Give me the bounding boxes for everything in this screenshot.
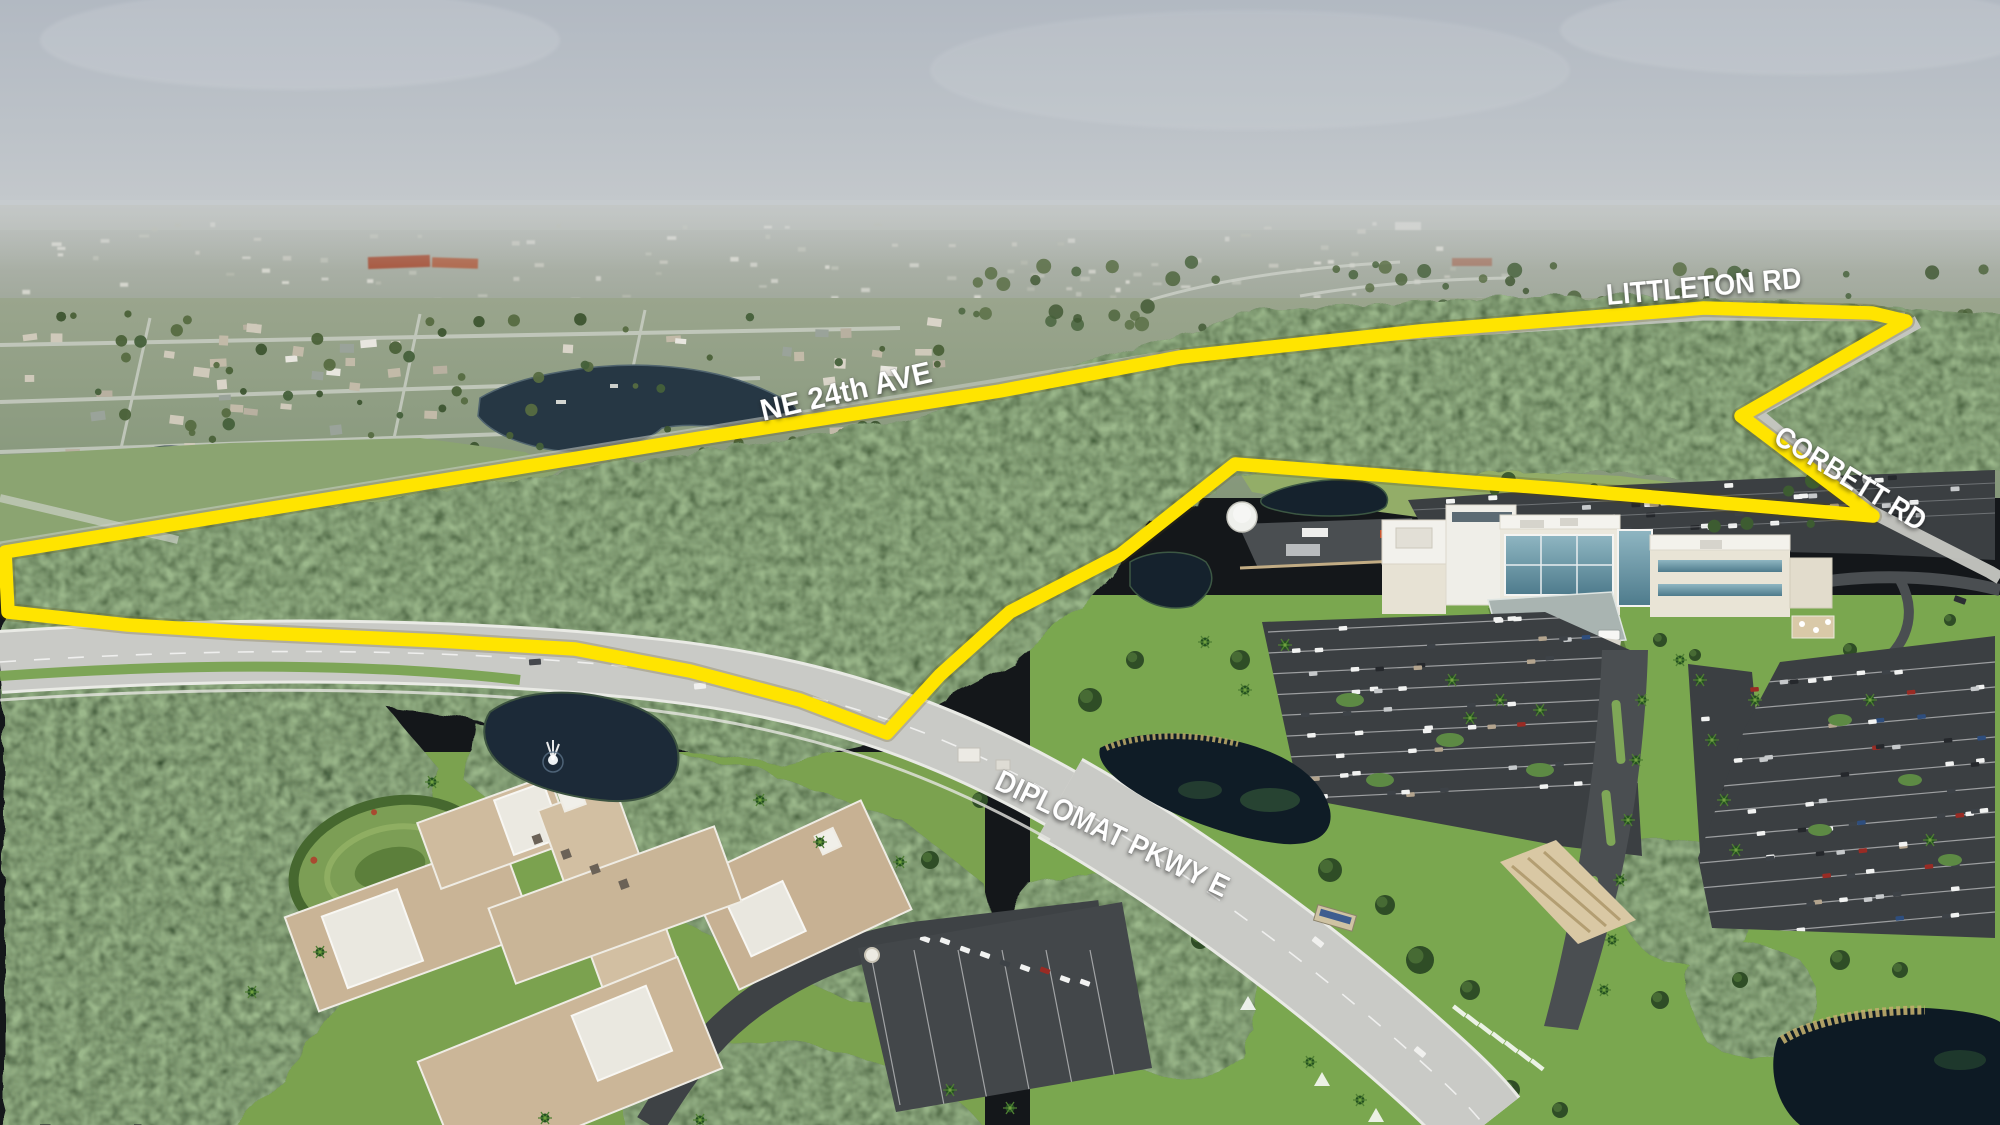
- gazebo: [865, 948, 879, 962]
- sky: [0, 0, 2000, 230]
- utility-box: [958, 748, 980, 762]
- aerial-site-map: LITTLETON RD NE 24th AVE CORBETT RD DIPL…: [0, 0, 2000, 1125]
- aerial-photo: LITTLETON RD NE 24th AVE CORBETT RD DIPL…: [0, 0, 2000, 1125]
